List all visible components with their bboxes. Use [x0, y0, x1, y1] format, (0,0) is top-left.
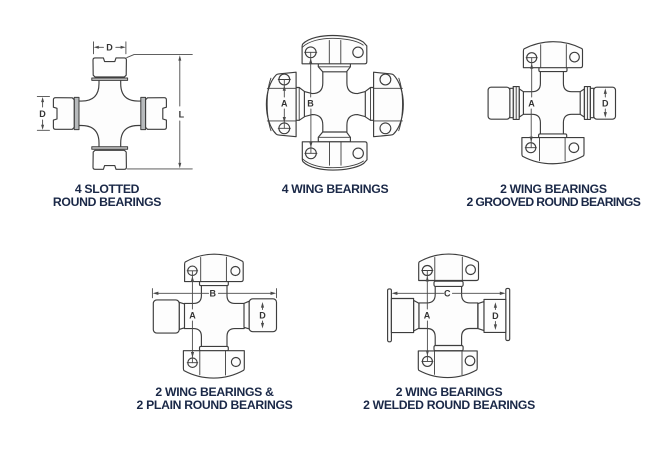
svg-text:D: D [39, 109, 46, 119]
svg-text:L: L [179, 109, 185, 119]
svg-text:D: D [259, 311, 266, 321]
svg-text:D: D [106, 43, 113, 53]
svg-text:A: A [424, 311, 431, 321]
svg-text:A: A [528, 99, 535, 109]
svg-text:B: B [210, 289, 217, 299]
svg-text:C: C [444, 289, 451, 299]
svg-text:B: B [307, 99, 314, 109]
svg-text:D: D [492, 311, 499, 321]
svg-text:A: A [281, 99, 288, 109]
svg-text:D: D [602, 99, 609, 109]
svg-text:A: A [189, 311, 196, 321]
